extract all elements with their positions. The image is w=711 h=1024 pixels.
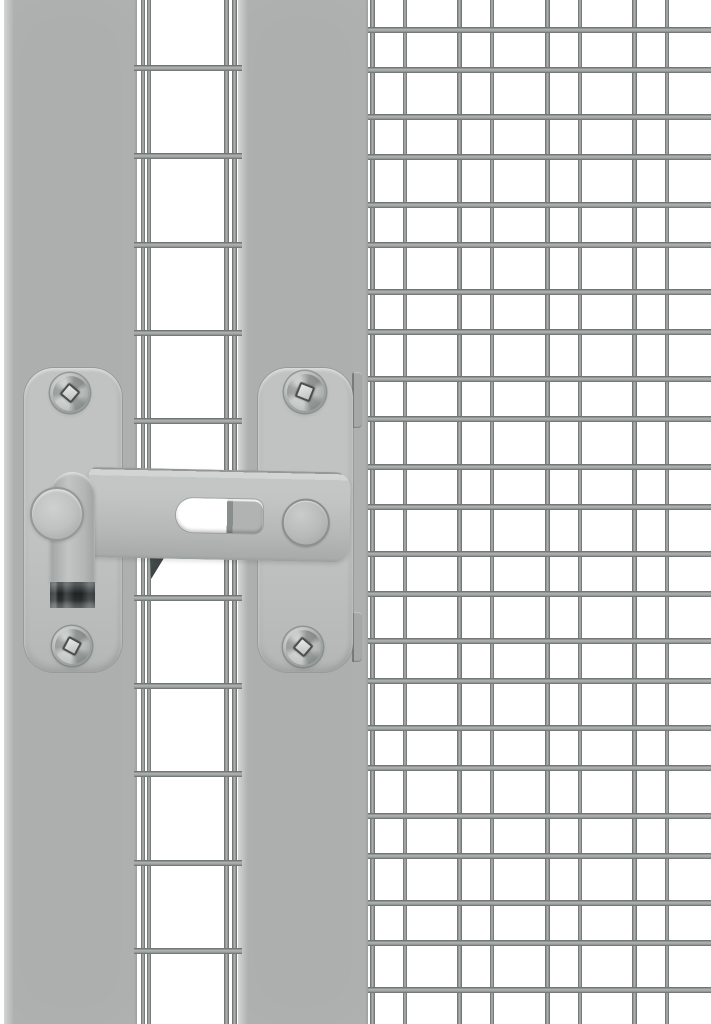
latch-slot	[176, 498, 264, 534]
latch-handle-tip	[50, 582, 95, 608]
mesh-panel-side	[368, 0, 711, 1024]
mesh-wire-horizontal	[368, 27, 711, 33]
latch-knob	[281, 498, 330, 547]
mesh-wire-horizontal	[368, 591, 711, 597]
screw	[284, 371, 326, 413]
mesh-wire-horizontal	[368, 678, 711, 684]
mesh-wire-horizontal	[134, 153, 242, 159]
mesh-wire-horizontal	[134, 330, 242, 336]
latch-pivot-barrel	[30, 487, 84, 541]
mesh-wire-horizontal	[134, 595, 242, 601]
mesh-wire-horizontal	[368, 765, 711, 771]
mesh-wire-horizontal	[368, 114, 711, 120]
latch-plate-tab	[352, 372, 362, 428]
screw	[50, 373, 90, 413]
latch-bar	[87, 467, 351, 562]
mesh-wire-horizontal	[368, 813, 711, 819]
mesh-wire-horizontal	[134, 948, 242, 954]
mesh-wire-horizontal	[134, 860, 242, 866]
mesh-wire-horizontal	[134, 242, 242, 248]
mesh-wire-horizontal	[368, 67, 711, 73]
mesh-wire-horizontal	[134, 683, 242, 689]
product-photo-gate-latch	[0, 0, 711, 1024]
screw	[52, 626, 92, 666]
mesh-wire-horizontal	[368, 154, 711, 160]
mesh-wire-horizontal	[368, 504, 711, 510]
mesh-wire-horizontal	[134, 771, 242, 777]
mesh-wire-horizontal	[134, 65, 242, 71]
mesh-wire-horizontal	[368, 202, 711, 208]
mesh-wire-horizontal	[368, 725, 711, 731]
mesh-wire-horizontal	[368, 464, 711, 470]
mesh-wire-horizontal	[368, 289, 711, 295]
latch-plate-tab	[352, 612, 362, 662]
mesh-wire-horizontal	[368, 900, 711, 906]
mesh-wire-horizontal	[368, 376, 711, 382]
screw	[283, 627, 323, 667]
mesh-wire-horizontal	[368, 242, 711, 248]
mesh-wire-horizontal	[368, 940, 711, 946]
mesh-wire-horizontal	[134, 418, 242, 424]
mesh-wire-horizontal	[368, 638, 711, 644]
mesh-wire-horizontal	[368, 551, 711, 557]
mesh-wire-horizontal	[368, 329, 711, 335]
mesh-wire-horizontal	[368, 416, 711, 422]
mesh-wire-horizontal	[368, 987, 711, 993]
mesh-wire-horizontal	[368, 853, 711, 859]
